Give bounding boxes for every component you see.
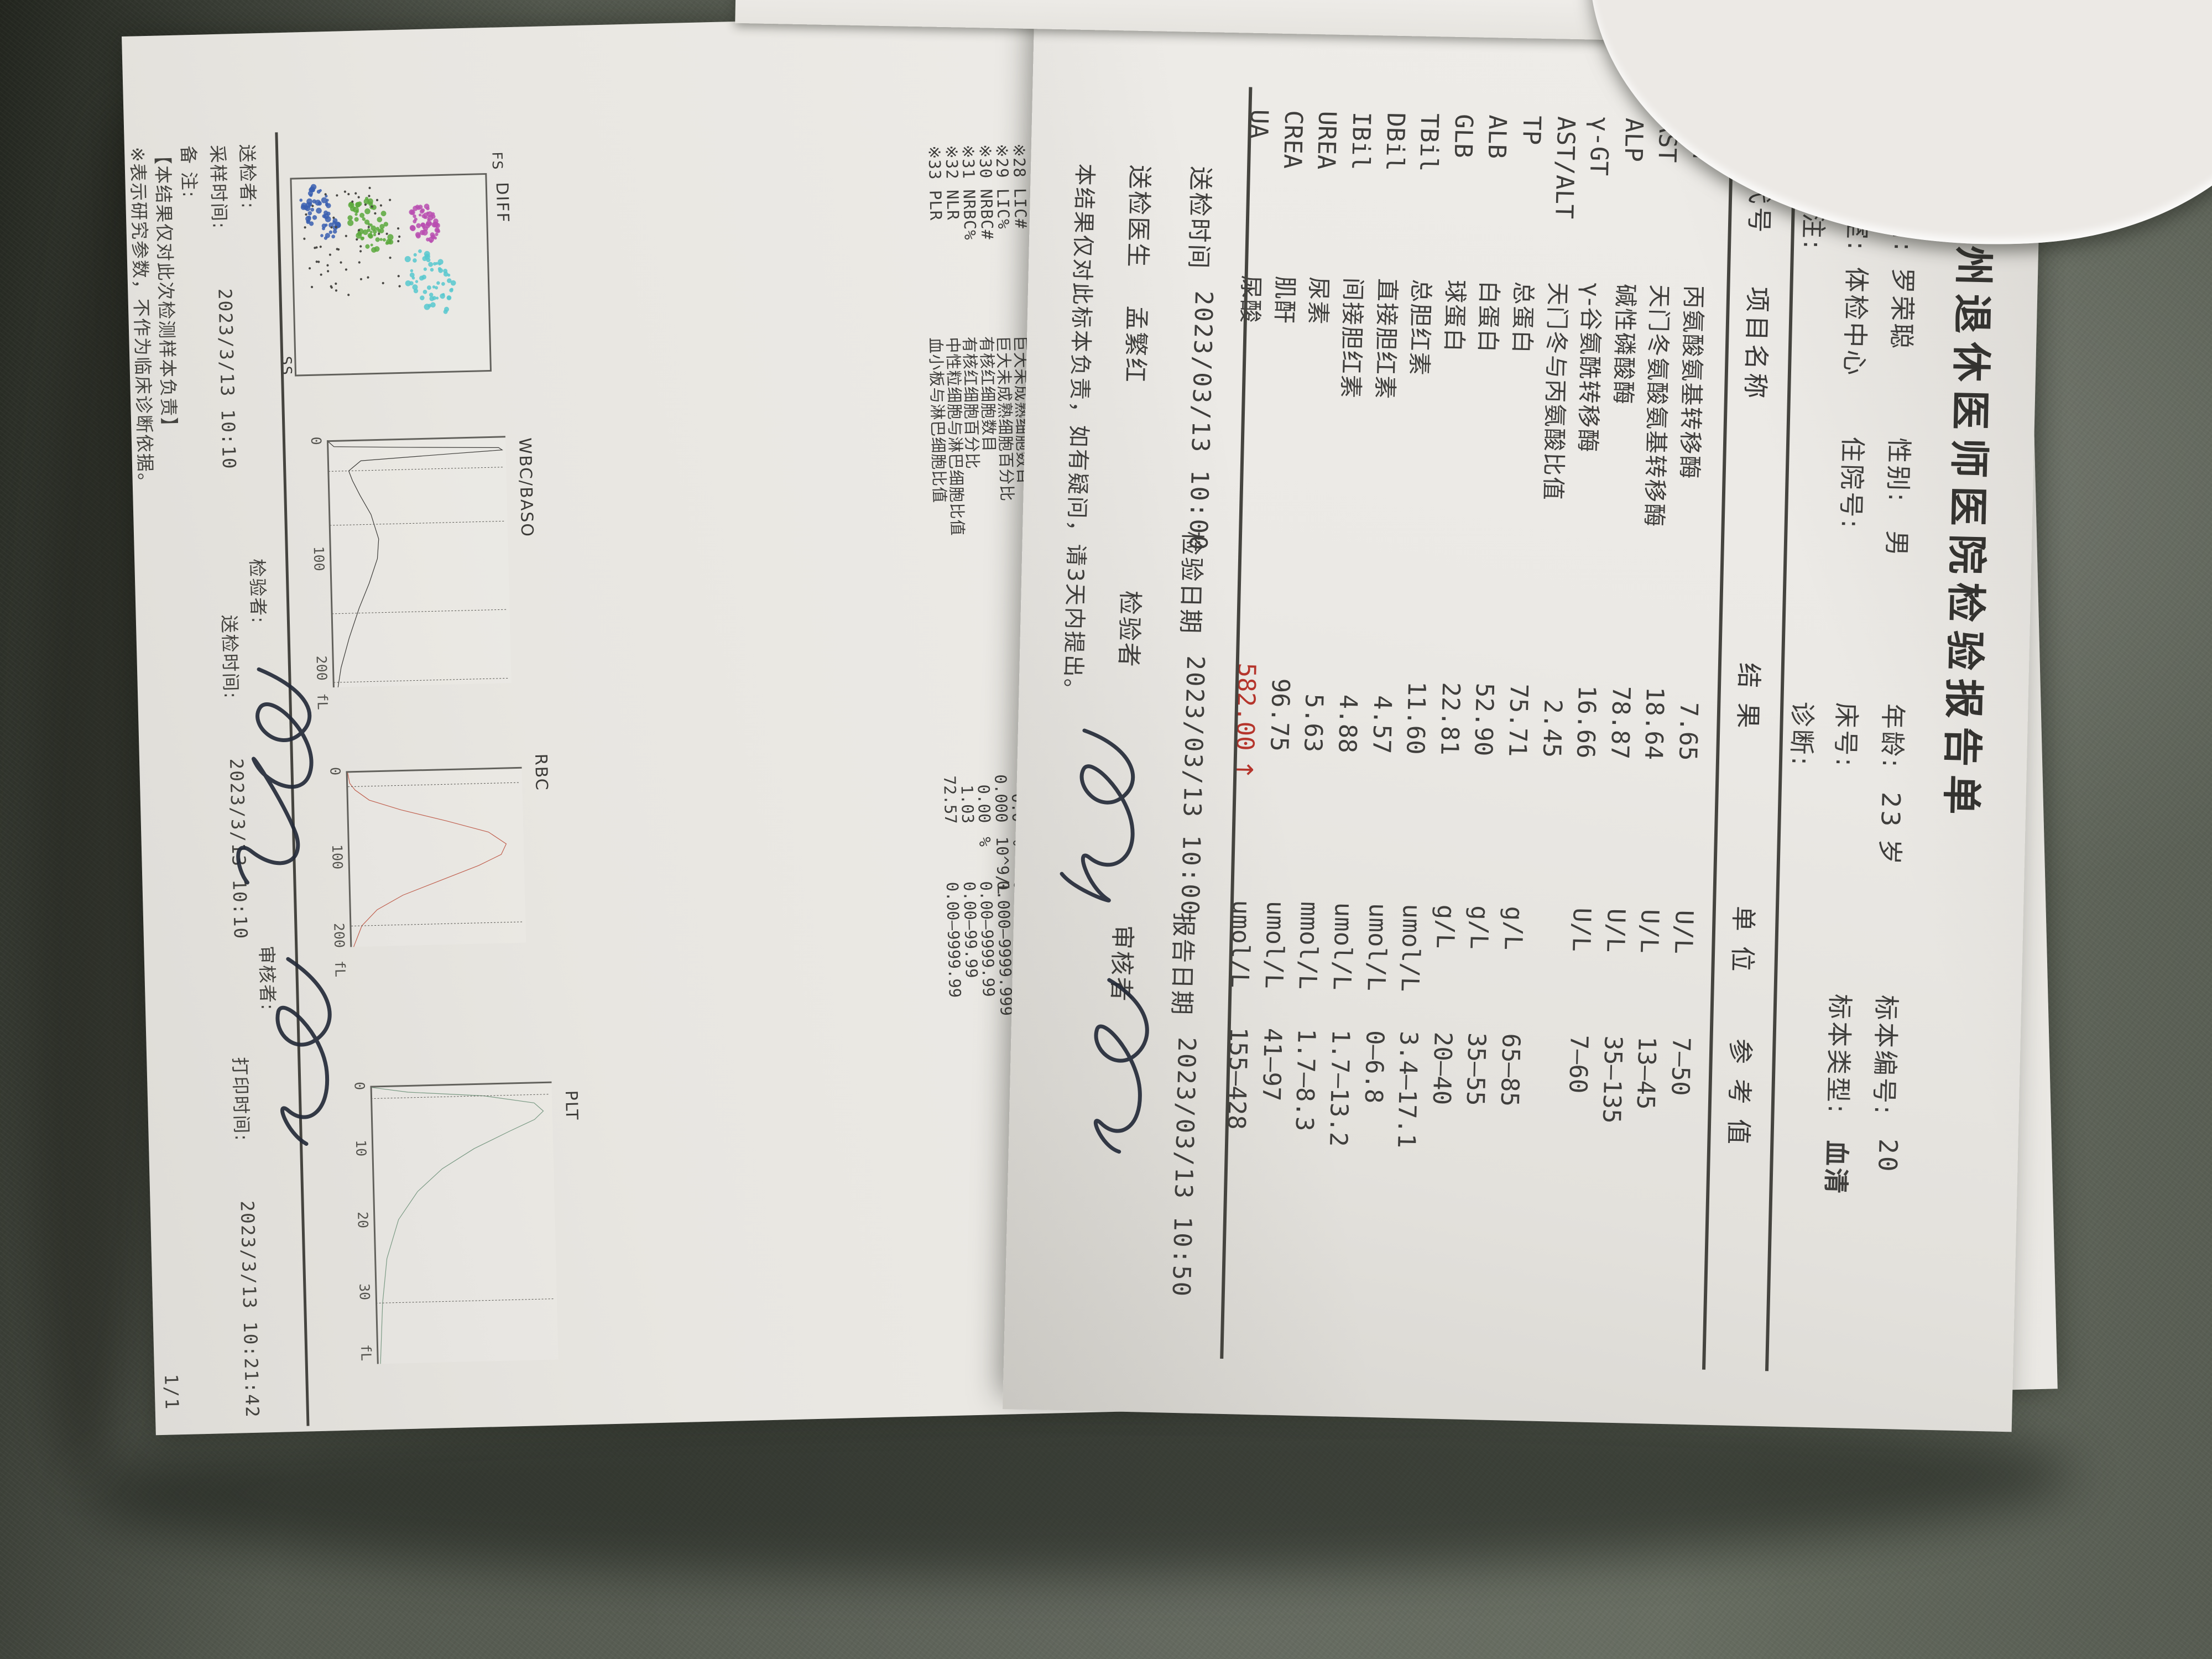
tester-signature: [215, 656, 364, 891]
item-code: GLB: [1448, 114, 1478, 159]
item-reference: 0—6.8: [1359, 1030, 1389, 1104]
plt-chart-title: PLT: [561, 1090, 581, 1121]
test-date-label: 检验日期: [1175, 531, 1212, 635]
item-reference: 1.7—8.3: [1290, 1029, 1321, 1132]
sample-type-label: 标本类型:: [1821, 993, 1860, 1115]
item-unit: mmol/L: [1293, 901, 1324, 990]
item-reference: 0.00—9999.99: [943, 881, 964, 998]
print-time-label: 打印时间:: [228, 1057, 257, 1142]
item-unit: umol/L: [1361, 903, 1392, 992]
item-name: 尿素: [1303, 276, 1338, 326]
tester-label: 检验者: [1113, 590, 1150, 669]
item-result: 96.75: [1265, 607, 1296, 752]
sender-label: 送检者:: [235, 144, 263, 210]
tester-signature: [1053, 719, 1168, 909]
item-unit: umol/L: [1396, 904, 1426, 992]
item-code: ALB: [1483, 114, 1512, 159]
diff-scattergram: [290, 173, 492, 377]
item-name: 天门冬与丙氨酸比值: [1537, 282, 1576, 502]
item-unit: umol/L: [1327, 902, 1358, 990]
item-reference: 7—50: [1666, 1037, 1695, 1096]
rbc-chart-title: RBC: [531, 754, 551, 792]
item-name: 白蛋白: [1473, 280, 1508, 354]
item-result: 2.45: [1537, 614, 1569, 758]
send-time-value: 2023/03/13 10:00: [1183, 290, 1218, 552]
item-result: 11.60: [1401, 611, 1432, 755]
print-time-value: 2023/3/13 10:21:42: [237, 1201, 264, 1418]
item-result: 72.57: [939, 735, 960, 824]
axis-tick: 30: [356, 1284, 373, 1301]
item-result: 52.90: [1469, 612, 1500, 757]
dept-value: 体检中心: [1838, 267, 1877, 378]
axis-tick: 20: [354, 1212, 371, 1229]
disclaimer: 本结果仅对此标本负责，如有疑问，请3天内提出。: [1058, 163, 1103, 703]
item-unit: U/L: [1669, 910, 1698, 954]
item-code: CREA: [1278, 110, 1307, 169]
item-reference: 1.7—13.2: [1324, 1029, 1355, 1147]
tester-label: 检验者:: [245, 559, 273, 624]
item-unit: g/L: [1431, 904, 1460, 949]
item-reference: 7—60: [1563, 1035, 1593, 1094]
age-value: 23 岁: [1873, 791, 1911, 867]
col-header-name: 项目名称: [1739, 286, 1778, 402]
item-name: 丙氨酸氨基转移酶: [1674, 285, 1713, 480]
report-title: 贵州退休医师医院检验报告单: [1936, 197, 2008, 823]
col-header-reference: 参 考 值: [1721, 1038, 1760, 1148]
item-name: 总蛋白: [1507, 281, 1542, 354]
item-code: TP: [1517, 115, 1546, 145]
item-name: 肌酐: [1269, 275, 1304, 325]
item-reference: 3.4—17.1: [1392, 1031, 1423, 1149]
item-reference: 65—85: [1495, 1033, 1525, 1107]
sex-value: 男: [1880, 530, 1917, 559]
item-name: γ-谷氨酰转移酶: [1573, 283, 1610, 453]
test-date-value: 2023/03/13 10:00: [1175, 655, 1209, 917]
diff-chart-title: DIFF: [492, 182, 513, 223]
col-header-unit: 单 位: [1725, 905, 1764, 975]
item-code: AST/ALT: [1550, 116, 1580, 220]
item-result: 22.81: [1435, 611, 1467, 755]
send-doctor-value: 孟繁红: [1119, 305, 1156, 384]
item-code: ALP: [1619, 118, 1648, 163]
item-name: 球蛋白: [1438, 279, 1474, 353]
sample-no-value: 20: [1872, 1139, 1903, 1175]
wbc-chart-title: WBC/BASO: [515, 437, 536, 538]
item-name: 尿酸: [1235, 275, 1270, 324]
plt-histogram: [371, 1082, 559, 1364]
item-code: UREA: [1312, 111, 1341, 170]
fs-axis-label: FS: [489, 152, 505, 171]
item-reference: 13—45: [1631, 1036, 1661, 1110]
item-result: 75.71: [1503, 613, 1535, 757]
item-code: IBil: [1346, 111, 1375, 170]
item-reference: 20—40: [1427, 1031, 1457, 1105]
item-code: DBil: [1380, 112, 1410, 171]
axis-tick: 100: [311, 546, 327, 571]
send-time-label: 送检时间: [1183, 166, 1220, 270]
diagnosis-label: 诊断:: [1785, 701, 1823, 768]
name-value: 罗荣聪: [1885, 268, 1923, 351]
item-name: 天门冬氨酸氨基转移酶: [1639, 284, 1678, 528]
item-unit: U/L: [1635, 909, 1664, 954]
age-label: 年龄:: [1875, 703, 1913, 770]
remark-label: 备 注:: [176, 145, 204, 199]
sex-label: 性别:: [1881, 437, 1919, 504]
item-code: ※33 PLR: [925, 145, 945, 221]
item-unit: g/L: [1499, 906, 1528, 951]
item-name: 直接胆红素: [1369, 278, 1406, 400]
axis-tick: 200: [331, 923, 347, 948]
item-name: 间接胆红素: [1335, 277, 1372, 399]
page-number: 1/1: [160, 1374, 183, 1411]
inpatient-label: 住院号:: [1834, 436, 1873, 531]
item-name: 总胆红素: [1404, 279, 1440, 377]
item-unit: U/L: [1567, 907, 1596, 952]
item-unit: umol/L: [1259, 900, 1290, 989]
item-reference: 35—135: [1597, 1035, 1627, 1124]
item-code: γ-GT: [1584, 117, 1614, 176]
sample-no-label: 标本编号:: [1867, 994, 1907, 1117]
wbc-histogram: [327, 436, 512, 687]
rbc-histogram: [346, 767, 526, 947]
item-name: 血小板与淋巴细胞比值: [925, 337, 952, 504]
axis-tick: 0: [308, 436, 324, 445]
reviewer-signature: [1072, 971, 1170, 1156]
item-result: 5.63: [1299, 608, 1331, 753]
sample-type-value: 血清: [1819, 1140, 1856, 1196]
item-name: 碱性磷酸酶: [1608, 283, 1644, 405]
bed-label: 床号:: [1829, 702, 1867, 769]
report-date-value: 2023/03/13 10:50: [1167, 1037, 1201, 1298]
axis-unit: fL: [358, 1344, 374, 1361]
item-result: 18.64: [1639, 616, 1671, 760]
item-result: 78.87: [1605, 615, 1637, 759]
col-header-result: 结 果: [1731, 662, 1769, 732]
item-code: TBil: [1414, 113, 1443, 172]
reviewer-signature: [255, 949, 359, 1150]
report-date-label: 报告日期: [1166, 912, 1203, 1017]
item-result: 4.88: [1333, 609, 1364, 753]
item-reference: 35—55: [1461, 1032, 1491, 1107]
item-unit: %: [975, 837, 994, 847]
item-unit: g/L: [1465, 905, 1494, 950]
item-unit: U/L: [1601, 908, 1630, 953]
sample-time-value: 2023/3/13 10:10: [214, 288, 240, 470]
item-result: 7.65: [1673, 617, 1705, 761]
sample-time-label: 采样时间:: [206, 144, 234, 229]
item-result: 4.57: [1367, 610, 1399, 754]
item-reference: 41—97: [1257, 1027, 1287, 1102]
item-result: 16.66: [1571, 614, 1603, 759]
send-doctor-label: 送检医生: [1122, 164, 1160, 269]
